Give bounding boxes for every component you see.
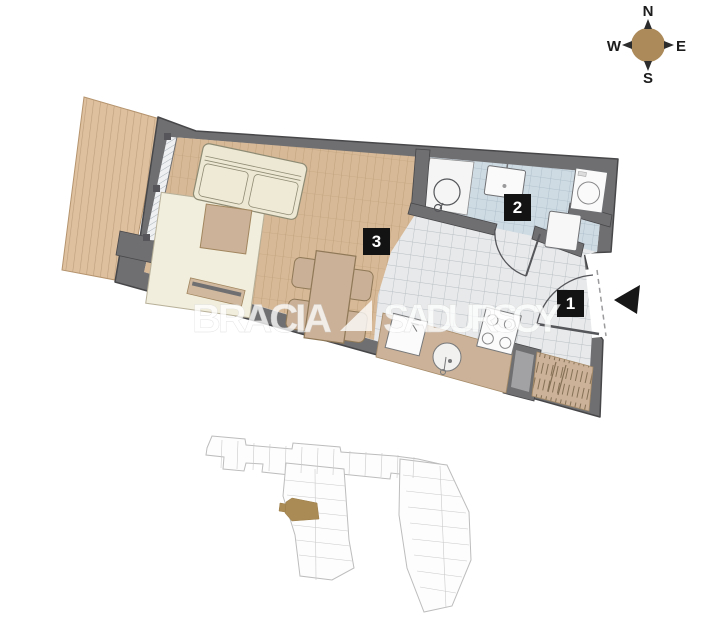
compass-label-east: E (676, 38, 686, 55)
room-number-1: 1 (566, 294, 575, 313)
entrance-arrow-icon (614, 285, 640, 314)
room-badge-2: 2 (504, 194, 531, 221)
site-plan-right-wing (399, 459, 471, 612)
floor-plan-figure: 3 2 1 BRACIA SADURSCY N W E S (0, 0, 713, 631)
washing-machine (570, 168, 607, 213)
compass-label-south: S (643, 70, 653, 87)
site-plan-middle-wing (283, 463, 354, 580)
compass-rose: N W E S (607, 3, 686, 87)
apartment-plan: 3 2 1 (62, 97, 640, 417)
compass-disc (631, 28, 665, 62)
toilet (545, 211, 582, 251)
watermark-brand-right: SADURSCY (383, 297, 561, 341)
coffee-table (200, 204, 252, 254)
room-badge-3: 3 (363, 228, 390, 255)
room-badge-1: 1 (557, 290, 584, 317)
floor-plan-page: 3 2 1 BRACIA SADURSCY N W E S (0, 0, 713, 631)
room-number-2: 2 (513, 198, 522, 217)
watermark-brand-left: BRACIA (192, 297, 332, 341)
room-number-3: 3 (372, 232, 381, 251)
compass-label-west: W (607, 38, 622, 55)
site-plan (206, 436, 471, 612)
compass-label-north: N (643, 3, 654, 20)
